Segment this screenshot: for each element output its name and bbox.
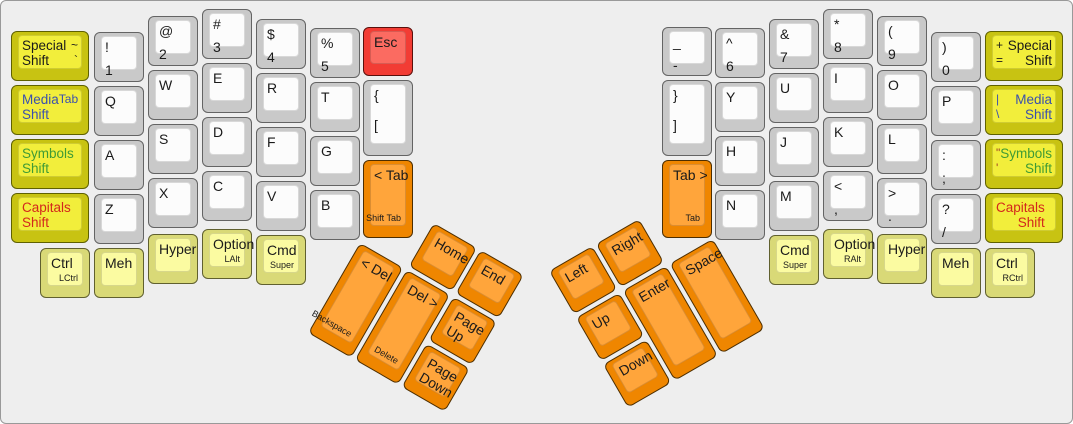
key-sub-legend: RAlt xyxy=(844,254,861,264)
key-legend: Hyper xyxy=(159,241,196,269)
key-aux-line: + xyxy=(996,38,1003,53)
key-legend: X xyxy=(159,185,168,213)
key-legend: B xyxy=(321,197,330,225)
key-legend-line: K xyxy=(834,124,843,140)
key-special-shift-left[interactable]: SpecialShift~` xyxy=(11,31,89,81)
keycap-top: L xyxy=(884,128,920,162)
keycap-top: OptionLAlt xyxy=(209,233,245,267)
key-left-bracket[interactable]: {[ xyxy=(363,80,413,156)
key-legend: SymbolsShift xyxy=(1000,146,1052,174)
key-legend-line: D xyxy=(213,124,223,140)
key-legend-line: Shift xyxy=(1008,53,1052,68)
key-legend: }] xyxy=(673,87,678,141)
keycap-top: CtrlRCtrl xyxy=(992,252,1028,286)
key-legend: *8 xyxy=(834,16,842,44)
key-legend: !1 xyxy=(105,39,113,67)
key-hyper-right[interactable]: Hyper xyxy=(877,234,927,284)
keycap-top: "'SymbolsShift xyxy=(992,143,1056,177)
key-lctrl[interactable]: CtrlLCtrl xyxy=(40,248,90,298)
key-legend-line: 9 xyxy=(888,46,896,62)
key-legend-line: : xyxy=(942,147,946,163)
key-legend-line: Ctrl xyxy=(51,255,73,271)
key-legend-line: Right xyxy=(609,228,645,258)
key-legend: &7 xyxy=(780,26,789,54)
key-legend: %5 xyxy=(321,35,333,63)
key-legend: F xyxy=(267,134,276,162)
key-legend-line: < Tab xyxy=(374,167,408,183)
key-b[interactable]: B xyxy=(310,190,360,240)
keycap-top: @2 xyxy=(155,20,191,54)
key-aux-line: ~ xyxy=(71,38,78,53)
key-d[interactable]: D xyxy=(202,117,252,167)
keycap-top: _- xyxy=(669,31,705,64)
key-legend: Esc xyxy=(374,34,397,61)
keycap-top: E xyxy=(209,67,245,101)
key-legend-line: H xyxy=(726,143,736,159)
key-legend-line: > xyxy=(888,185,896,201)
key-legend-line: 7 xyxy=(780,49,789,65)
keycap-top: SymbolsShift xyxy=(18,143,82,177)
key-sub-legend: Super xyxy=(270,260,294,270)
key-legend-line: Enter xyxy=(636,275,673,306)
key-symbols-shift-right[interactable]: "'SymbolsShift xyxy=(985,139,1063,189)
key-slash[interactable]: ?/ xyxy=(931,194,981,244)
key-legend-line: Up xyxy=(589,309,613,332)
key-legend: M xyxy=(780,188,792,216)
keycap-top: (9 xyxy=(884,20,920,54)
key-3[interactable]: #3 xyxy=(202,9,252,59)
keycap-top: +=SpecialShift xyxy=(992,35,1056,69)
keycap-top: Esc xyxy=(370,31,406,64)
keycap-top: G xyxy=(317,140,353,174)
key-legend-line: L xyxy=(888,131,896,147)
key-symbols-shift-left[interactable]: SymbolsShift xyxy=(11,139,89,189)
keycap-top: B xyxy=(317,194,353,228)
keycap-top: Meh xyxy=(938,252,974,286)
key-legend-line: Shift xyxy=(1000,161,1052,176)
key-right-bracket[interactable]: }] xyxy=(662,80,712,156)
key-legend: CapitalsShift xyxy=(22,200,71,228)
key-legend-line: @ xyxy=(159,23,173,39)
keycap-top: SpecialShift~` xyxy=(18,35,82,69)
key-legend-line: 6 xyxy=(726,58,734,74)
key-legend-line: 1 xyxy=(105,62,113,78)
key-legend-line: Shift xyxy=(1015,107,1052,122)
keycap-top: Q xyxy=(101,90,137,124)
keycap-top: T xyxy=(317,86,353,120)
key-legend: V xyxy=(267,188,276,216)
key-t[interactable]: T xyxy=(310,82,360,132)
keycap-top: :; xyxy=(938,144,974,178)
key-g[interactable]: G xyxy=(310,136,360,186)
key-1[interactable]: !1 xyxy=(94,32,144,82)
key-legend-line: & xyxy=(780,26,789,42)
keycap-top: <, xyxy=(830,175,866,209)
key-legend: G xyxy=(321,143,332,171)
key-legend-line: P xyxy=(942,93,951,109)
key-legend-line: Shift xyxy=(22,161,74,176)
key-q[interactable]: Q xyxy=(94,86,144,136)
keycap-top: PageUp xyxy=(441,304,489,351)
keycap-top: >. xyxy=(884,182,920,216)
keycap-top: CmdSuper xyxy=(263,239,299,273)
key-legend: _- xyxy=(673,34,681,61)
key-legend-line: X xyxy=(159,185,168,201)
key-legend: Up xyxy=(589,309,619,342)
key-comma[interactable]: <, xyxy=(823,171,873,221)
keycap-top: OptionRAlt xyxy=(830,233,866,267)
key-aux-legend: += xyxy=(996,38,1003,66)
keycap-top: Left xyxy=(557,253,605,300)
key-legend: L xyxy=(888,131,896,159)
key-legend: D xyxy=(213,124,223,152)
key-legend-line: % xyxy=(321,35,333,51)
keycap-top: I xyxy=(830,67,866,101)
key-v[interactable]: V xyxy=(256,181,306,231)
keycap-top: End xyxy=(468,257,516,304)
key-legend-line: 4 xyxy=(267,49,275,65)
key-legend: U xyxy=(780,80,790,108)
key-ralt[interactable]: OptionRAlt xyxy=(823,229,873,279)
key-period[interactable]: >. xyxy=(877,178,927,228)
key-legend: PageUp xyxy=(446,308,488,349)
keycap-top: U xyxy=(776,77,812,111)
keycap-top: |\MediaShift xyxy=(992,89,1056,123)
key-legend: Meh xyxy=(105,255,132,283)
keycap-top: W xyxy=(155,74,191,108)
key-legend-line: Meh xyxy=(942,255,969,271)
key-media-shift-left[interactable]: MediaShiftTab xyxy=(11,85,89,135)
key-legend: SpecialShift xyxy=(22,38,66,66)
key-legend-line: ; xyxy=(942,170,946,186)
keycap-top: M xyxy=(776,185,812,219)
keycap-top: CtrlLCtrl xyxy=(47,252,83,286)
key-sub-legend: LAlt xyxy=(224,254,240,264)
key-aux-legend: Tab xyxy=(59,92,78,120)
keycap-top: Hyper xyxy=(884,238,920,272)
key-legend-line: E xyxy=(213,70,222,86)
key-legend-line: V xyxy=(267,188,276,204)
key-legend-line: Capitals xyxy=(996,200,1045,215)
key-r[interactable]: R xyxy=(256,73,306,123)
key-legend: @2 xyxy=(159,23,173,51)
key-legend-line: S xyxy=(159,131,168,147)
keycap-top: H xyxy=(722,140,758,174)
key-f[interactable]: F xyxy=(256,127,306,177)
key-legend: End xyxy=(473,262,509,299)
key-rctrl[interactable]: CtrlRCtrl xyxy=(985,248,1035,298)
key-legend-line: B xyxy=(321,197,330,213)
keyboard-diagram: HomeEnd< DelBackspaceDel >DeletePageUpPa… xyxy=(0,0,1073,424)
key-n[interactable]: N xyxy=(715,190,765,240)
key-special-shift-right[interactable]: +=SpecialShift xyxy=(985,31,1063,81)
key-legend-line: 8 xyxy=(834,39,842,55)
keycap-top: #3 xyxy=(209,13,245,47)
key-legend: Q xyxy=(105,93,116,121)
key-legend-line: Symbols xyxy=(1000,146,1052,161)
keycap-top: {[ xyxy=(370,84,406,144)
keycap-top: CapitalsShift xyxy=(992,197,1056,231)
key-legend-line: U xyxy=(780,80,790,96)
key-legend-line: W xyxy=(159,77,172,93)
key-0[interactable]: )0 xyxy=(931,32,981,82)
keycap-top: Y xyxy=(722,86,758,120)
key-legend-line: < xyxy=(834,178,842,194)
keycap-top: Up xyxy=(584,300,632,347)
key-legend: >. xyxy=(888,185,896,213)
key-legend: Meh xyxy=(942,255,969,283)
key-legend-line: [ xyxy=(374,117,379,133)
key-legend-line: N xyxy=(726,197,736,213)
key-legend-line: Media xyxy=(22,92,59,107)
key-legend-line: A xyxy=(105,147,114,163)
key-y[interactable]: Y xyxy=(715,82,765,132)
keycap-top: O xyxy=(884,74,920,108)
keycap-top: %5 xyxy=(317,32,353,66)
key-legend-line: ] xyxy=(673,117,678,133)
key-legend-line: Shift xyxy=(22,215,71,230)
key-aux-legend: ~` xyxy=(71,38,78,66)
key-legend-line: 0 xyxy=(942,62,950,78)
key-legend-line: Home xyxy=(432,235,472,268)
key-7[interactable]: &7 xyxy=(769,19,819,69)
key-legend: A xyxy=(105,147,114,175)
key-j[interactable]: J xyxy=(769,127,819,177)
key-legend: Home xyxy=(426,235,472,278)
key-meh-left[interactable]: Meh xyxy=(94,248,144,298)
key-aux-line: \ xyxy=(996,107,999,122)
keycap-top: < TabShift Tab xyxy=(370,164,406,226)
keycap-top: PageDown xyxy=(414,350,462,397)
key-legend-line: ^ xyxy=(726,35,734,51)
keycap-top: !1 xyxy=(101,36,137,70)
keycap-top: CapitalsShift xyxy=(18,197,82,231)
keycap-top: Right xyxy=(604,226,652,273)
key-legend: PageDown xyxy=(419,355,464,397)
key-legend-line: C xyxy=(213,178,223,194)
key-6[interactable]: ^6 xyxy=(715,28,765,78)
keycap-top: S xyxy=(155,128,191,162)
keycap-top: P xyxy=(938,90,974,124)
key-legend: Down xyxy=(616,347,661,389)
key-legend: )0 xyxy=(942,39,950,67)
key-capitals-shift-left[interactable]: CapitalsShift xyxy=(11,193,89,243)
key-legend-line: Cmd xyxy=(780,242,810,258)
key-legend: I xyxy=(834,70,838,98)
key-9[interactable]: (9 xyxy=(877,16,927,66)
key-legend-line: Shift xyxy=(22,53,66,68)
keycap-top: D xyxy=(209,121,245,155)
keycap-top: MediaShiftTab xyxy=(18,89,82,123)
keycap-top: )0 xyxy=(938,36,974,70)
keycap-top: $4 xyxy=(263,23,299,57)
key-legend-line: Tab > xyxy=(673,167,708,183)
key-legend-line: Y xyxy=(726,89,735,105)
key-legend: CapitalsShift xyxy=(996,200,1045,228)
key-legend: Y xyxy=(726,89,735,117)
key-legend: H xyxy=(726,143,736,171)
keycap-top: V xyxy=(263,185,299,219)
key-legend: MediaShift xyxy=(22,92,59,120)
key-sub-legend: RCtrl xyxy=(1003,273,1024,283)
key-legend-line: ? xyxy=(942,201,950,217)
key-media-shift-right[interactable]: |\MediaShift xyxy=(985,85,1063,135)
key-legend-line: Z xyxy=(105,201,114,217)
key-2[interactable]: @2 xyxy=(148,16,198,66)
key-u[interactable]: U xyxy=(769,73,819,123)
key-a[interactable]: A xyxy=(94,140,144,190)
keycap-top: Down xyxy=(611,346,659,393)
key-legend: MediaShift xyxy=(1015,92,1052,120)
key-8[interactable]: *8 xyxy=(823,9,873,59)
keycap-top: ?/ xyxy=(938,198,974,232)
key-s[interactable]: S xyxy=(148,124,198,174)
key-h[interactable]: H xyxy=(715,136,765,186)
key-sub-legend: Tab xyxy=(685,213,700,223)
key-legend-line: Special xyxy=(22,38,66,53)
key-legend-line: T xyxy=(321,89,330,105)
key-legend-line: * xyxy=(834,16,842,32)
key-legend-line: 5 xyxy=(321,58,333,74)
keycap-top: Home xyxy=(421,230,469,277)
key-aux-line: | xyxy=(996,92,999,107)
key-legend-line: # xyxy=(213,16,221,32)
key-legend: (9 xyxy=(888,23,896,51)
keycap-top: ^6 xyxy=(722,32,758,66)
key-legend: J xyxy=(780,134,787,162)
key-legend: S xyxy=(159,131,168,159)
key-legend-line: ) xyxy=(942,39,950,55)
key-legend-line: Ctrl xyxy=(996,255,1018,271)
key-legend-line: ! xyxy=(105,39,113,55)
key-x[interactable]: X xyxy=(148,178,198,228)
key-legend-line: . xyxy=(888,208,896,224)
keycap-top: R xyxy=(263,77,299,111)
key-legend: $4 xyxy=(267,26,275,54)
key-m[interactable]: M xyxy=(769,181,819,231)
key-tab[interactable]: Tab >Tab xyxy=(662,160,712,238)
key-lalt[interactable]: OptionLAlt xyxy=(202,229,252,279)
key-p[interactable]: P xyxy=(931,86,981,136)
key-aux-legend: |\ xyxy=(996,92,999,120)
keycap-top: *8 xyxy=(830,13,866,47)
key-legend-line: Q xyxy=(105,93,116,109)
key-legend-line: Option xyxy=(834,236,875,252)
key-legend: :; xyxy=(942,147,946,175)
key-legend-line: $ xyxy=(267,26,275,42)
key-meh-right[interactable]: Meh xyxy=(931,248,981,298)
key-legend-line: Symbols xyxy=(22,146,74,161)
key-legend-line: 3 xyxy=(213,39,221,55)
key-legend-line: Hyper xyxy=(888,241,925,257)
keycap-top: F xyxy=(263,131,299,165)
key-legend-line: Left xyxy=(562,260,590,286)
key-i[interactable]: I xyxy=(823,63,873,113)
keycap-top: Tab >Tab xyxy=(669,164,705,226)
key-legend: C xyxy=(213,178,223,206)
key-sub-legend: Shift Tab xyxy=(366,213,401,223)
key-legend: Left xyxy=(562,260,596,296)
key-capitals-shift-right[interactable]: CapitalsShift xyxy=(985,193,1063,243)
key-legend-line: Capitals xyxy=(22,200,71,215)
key-5[interactable]: %5 xyxy=(310,28,360,78)
key-e[interactable]: E xyxy=(202,63,252,113)
key-hyper-left[interactable]: Hyper xyxy=(148,234,198,284)
key-legend: SymbolsShift xyxy=(22,146,74,174)
key-z[interactable]: Z xyxy=(94,194,144,244)
keycap-top: Z xyxy=(101,198,137,232)
key-minus[interactable]: _- xyxy=(662,27,712,76)
keycap-top: K xyxy=(830,121,866,155)
key-shift-tab[interactable]: < TabShift Tab xyxy=(363,160,413,238)
key-legend-line: Meh xyxy=(105,255,132,271)
keycap-top: J xyxy=(776,131,812,165)
key-legend-line: { xyxy=(374,87,379,103)
keycap-top: X xyxy=(155,182,191,216)
keycap-top: &7 xyxy=(776,23,812,57)
key-legend-line: Del > xyxy=(405,281,442,311)
key-legend: Hyper xyxy=(888,241,925,269)
keycap-top: }] xyxy=(669,84,705,144)
key-k[interactable]: K xyxy=(823,117,873,167)
keycap-top: Meh xyxy=(101,252,137,286)
key-legend-line: Special xyxy=(1008,38,1052,53)
key-legend-line: Hyper xyxy=(159,241,196,257)
key-legend-line: 2 xyxy=(159,46,173,62)
key-cmd-left[interactable]: CmdSuper xyxy=(256,235,306,285)
key-legend-line: Shift xyxy=(996,215,1045,230)
key-aux-line: Tab xyxy=(59,92,78,107)
key-esc[interactable]: Esc xyxy=(363,27,413,76)
key-legend-line: Down xyxy=(616,347,655,379)
key-c[interactable]: C xyxy=(202,171,252,221)
key-legend: {[ xyxy=(374,87,379,141)
key-legend: Z xyxy=(105,201,114,229)
key-legend: R xyxy=(267,80,277,108)
key-legend-line: I xyxy=(834,70,838,86)
key-cmd-right[interactable]: CmdSuper xyxy=(769,235,819,285)
key-legend: N xyxy=(726,197,736,225)
key-legend-line: Space xyxy=(683,244,725,278)
key-legend: ^6 xyxy=(726,35,734,63)
key-semicolon[interactable]: :; xyxy=(931,140,981,190)
key-legend-line: End xyxy=(479,262,509,288)
key-legend-line: < Del xyxy=(358,254,395,284)
key-legend: E xyxy=(213,70,222,98)
key-legend: O xyxy=(888,77,899,105)
key-legend-line: } xyxy=(673,87,678,103)
key-o[interactable]: O xyxy=(877,70,927,120)
key-w[interactable]: W xyxy=(148,70,198,120)
key-legend: Right xyxy=(609,228,651,269)
keycap-top: CmdSuper xyxy=(776,239,812,273)
key-sub-legend: LCtrl xyxy=(59,273,78,283)
key-legend-line: ( xyxy=(888,23,896,39)
key-legend-line: Cmd xyxy=(267,242,297,258)
keycap-top: Hyper xyxy=(155,238,191,272)
key-legend-line: J xyxy=(780,134,787,150)
key-legend: #3 xyxy=(213,16,221,44)
keycap-top: C xyxy=(209,175,245,209)
key-4[interactable]: $4 xyxy=(256,19,306,69)
key-legend: ?/ xyxy=(942,201,950,229)
key-legend-line: M xyxy=(780,188,792,204)
key-legend-line: Esc xyxy=(374,34,397,50)
key-legend: K xyxy=(834,124,843,152)
key-legend-line: R xyxy=(267,80,277,96)
key-sub-legend: Super xyxy=(783,260,807,270)
key-l[interactable]: L xyxy=(877,124,927,174)
